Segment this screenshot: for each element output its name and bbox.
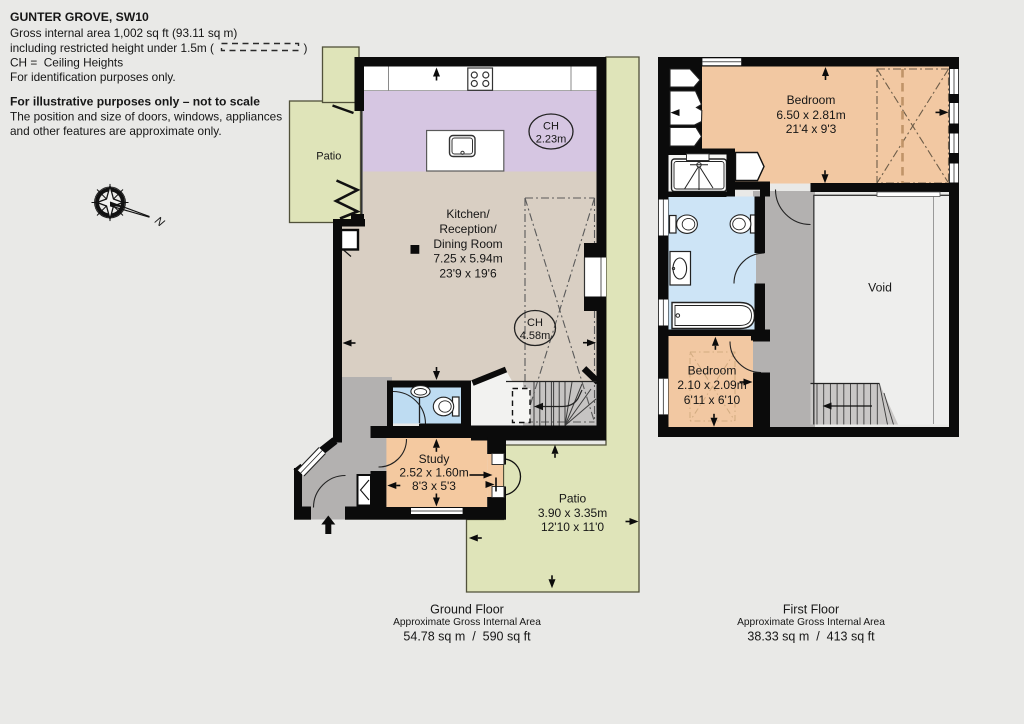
svg-text:First Floor: First Floor [783, 603, 839, 617]
svg-text:CH: CH [543, 121, 559, 133]
svg-text:21'4 x 9'3: 21'4 x 9'3 [786, 122, 837, 136]
svg-text:3.90 x 3.35m: 3.90 x 3.35m [538, 506, 607, 520]
svg-text:Gross internal area 1,002 sq f: Gross internal area 1,002 sq ft (93.11 s… [10, 26, 237, 40]
svg-text:): ) [304, 41, 308, 55]
svg-text:2.23m: 2.23m [536, 134, 567, 146]
svg-text:12'10 x 11'0: 12'10 x 11'0 [541, 520, 604, 534]
svg-text:Reception/: Reception/ [439, 222, 497, 236]
svg-text:Study: Study [419, 452, 450, 466]
svg-text:38.33 sq m / 413 sq ft: 38.33 sq m / 413 sq ft [747, 630, 875, 644]
svg-text:For illustrative purposes only: For illustrative purposes only – not to … [10, 95, 260, 109]
svg-text:4.58m: 4.58m [520, 330, 551, 342]
svg-text:7.25 x 5.94m: 7.25 x 5.94m [433, 252, 502, 266]
svg-text:For identification purposes on: For identification purposes only. [10, 70, 176, 84]
svg-text:including restricted height un: including restricted height under 1.5m ( [10, 41, 214, 55]
svg-text:and other features are approxi: and other features are approximate only. [10, 124, 222, 138]
svg-text:54.78 sq m / 590 sq ft: 54.78 sq m / 590 sq ft [403, 630, 531, 644]
svg-text:6'11 x 6'10: 6'11 x 6'10 [684, 393, 741, 407]
svg-text:8'3 x 5'3: 8'3 x 5'3 [412, 479, 456, 493]
svg-text:CH: CH [527, 317, 543, 329]
svg-text:2.10 x 2.09m: 2.10 x 2.09m [677, 378, 746, 392]
svg-text:Bedroom: Bedroom [688, 364, 737, 378]
svg-text:23'9 x 19'6: 23'9 x 19'6 [439, 266, 497, 280]
svg-text:Approximate Gross Internal Are: Approximate Gross Internal Area [393, 617, 541, 628]
svg-text:Ground Floor: Ground Floor [430, 603, 504, 617]
svg-text:6.50 x 2.81m: 6.50 x 2.81m [776, 108, 845, 122]
svg-text:Bedroom: Bedroom [787, 93, 836, 107]
svg-text:Void: Void [868, 281, 892, 295]
svg-text:GUNTER GROVE, SW10: GUNTER GROVE, SW10 [10, 10, 149, 24]
svg-text:CH = Ceiling Heights: CH = Ceiling Heights [10, 56, 123, 70]
svg-text:Dining Room: Dining Room [433, 237, 502, 251]
svg-text:Patio: Patio [316, 151, 341, 163]
svg-text:Patio: Patio [559, 492, 587, 506]
svg-text:The position and size of doors: The position and size of doors, windows,… [10, 110, 282, 124]
svg-text:Kitchen/: Kitchen/ [446, 207, 490, 221]
svg-text:Approximate Gross Internal Are: Approximate Gross Internal Area [737, 617, 885, 628]
svg-text:2.52 x 1.60m: 2.52 x 1.60m [399, 466, 468, 480]
